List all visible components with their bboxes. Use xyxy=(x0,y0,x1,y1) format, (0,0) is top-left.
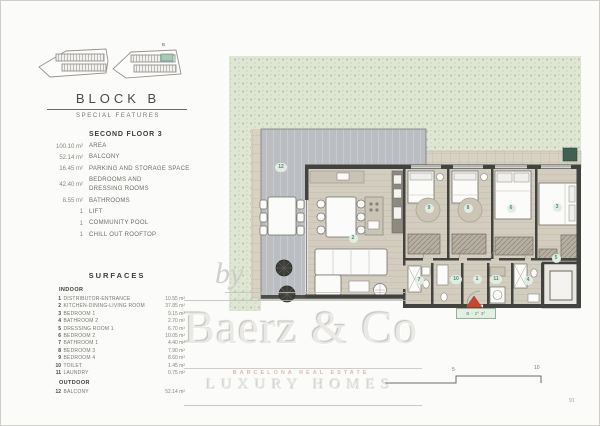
table-row: 11LAUNDRY0.75 m² xyxy=(49,370,185,376)
scale-label-10: 10 xyxy=(534,365,540,371)
title-divider xyxy=(47,109,187,110)
room-label: BEDROOM 1 xyxy=(64,311,169,317)
room-number: 2 xyxy=(49,303,61,309)
room-number: 4 xyxy=(49,318,61,324)
room-marker-11: 11 xyxy=(490,275,502,284)
summary-label: CHILL OUT ROOFTOP xyxy=(89,231,156,240)
summary-label: LIFT xyxy=(89,208,103,217)
room-area: 6.70 m² xyxy=(168,326,185,332)
page-title: BLOCK B xyxy=(43,91,193,106)
summary-value: 42.40 m² xyxy=(41,182,83,188)
summary-value: 100.10 m² xyxy=(41,144,83,150)
room-marker-6: 6 xyxy=(507,204,516,213)
room-label: BALCONY xyxy=(64,389,166,395)
room-marker-1: 1 xyxy=(473,275,482,284)
summary-row: 1CHILL OUT ROOFTOP xyxy=(41,231,213,240)
surfaces-table: SURFACES INDOOR 1DISTRIBUTOR-ENTRANCE10.… xyxy=(49,271,185,396)
summary-label: BATHROOMS xyxy=(89,197,130,206)
room-label: BEDROOM 3 xyxy=(64,348,169,354)
room-label: TOILET xyxy=(64,363,169,369)
room-number: 12 xyxy=(49,389,61,395)
summary-value: 1 xyxy=(41,209,83,215)
room-marker-4: 4 xyxy=(524,276,533,285)
room-area: 10.05 m² xyxy=(165,333,185,339)
page-subtitle: SPECIAL FEATURES xyxy=(43,113,193,119)
room-label: DRESSING ROOM 1 xyxy=(64,326,169,332)
brochure-page: B BLOCK B SPECIAL FEATURES SECOND FLOOR … xyxy=(0,0,600,426)
table-row: 4BATHROOM 22.70 m² xyxy=(49,318,185,324)
room-area: 9.15 m² xyxy=(168,311,185,317)
table-row: 10TOILET1.45 m² xyxy=(49,363,185,369)
room-label: KITCHEN-DINING-LIVING ROOM xyxy=(64,303,166,309)
summary-value: 16.45 m² xyxy=(41,166,83,172)
floor-summary-title: SECOND FLOOR 3 xyxy=(89,131,162,138)
floor-summary-list: 100.10 m²AREA 52.14 m²BALCONY 16.45 m²PA… xyxy=(41,142,213,242)
scale-label-5: 5 xyxy=(452,367,455,373)
table-row: 6BEDROOM 210.05 m² xyxy=(49,333,185,339)
room-label: BATHROOM 1 xyxy=(64,340,169,346)
table-row: 1DISTRIBUTOR-ENTRANCE10.55 m² xyxy=(49,296,185,302)
room-area: 1.45 m² xyxy=(168,363,185,369)
summary-row: 100.10 m²AREA xyxy=(41,142,213,151)
summary-value: 1 xyxy=(41,232,83,238)
room-area: 8.60 m² xyxy=(168,355,185,361)
room-marker-9: 9 xyxy=(425,204,434,213)
summary-value: 52.14 m² xyxy=(41,155,83,161)
summary-value: 1 xyxy=(41,221,83,227)
room-area: 10.55 m² xyxy=(165,296,185,302)
table-row: 5DRESSING ROOM 16.70 m² xyxy=(49,326,185,332)
room-label: BEDROOM 2 xyxy=(64,333,166,339)
room-number: 11 xyxy=(49,370,61,376)
table-row: 2KITCHEN-DINING-LIVING ROOM37.85 m² xyxy=(49,303,185,309)
summary-row: 16.45 m²PARKING AND STORAGE SPACE xyxy=(41,165,213,174)
table-row: 7BATHROOM 14.40 m² xyxy=(49,340,185,346)
table-row: 8BEDROOM 37.90 m² xyxy=(49,348,185,354)
room-number: 1 xyxy=(49,296,61,302)
room-area: 52.14 m² xyxy=(165,389,185,395)
room-label: BATHROOM 2 xyxy=(64,318,169,324)
summary-row: 42.40 m²BEDROOMS AND DRESSING ROOMS xyxy=(41,176,213,194)
room-area: 2.70 m² xyxy=(168,318,185,324)
room-area: 37.85 m² xyxy=(165,303,185,309)
room-area: 4.40 m² xyxy=(168,340,185,346)
outdoor-section-label: OUTDOOR xyxy=(59,380,185,386)
room-marker-7: 7 xyxy=(415,276,424,285)
summary-label: BEDROOMS AND DRESSING ROOMS xyxy=(89,176,149,194)
summary-label: PARKING AND STORAGE SPACE xyxy=(89,165,190,174)
summary-label: COMMUNITY POOL xyxy=(89,219,148,228)
room-label: LAUNDRY xyxy=(64,370,169,376)
site-plan-block-label: B xyxy=(162,42,165,47)
table-row: 9BEDROOM 48.60 m² xyxy=(49,355,185,361)
room-number: 8 xyxy=(49,348,61,354)
summary-label: BALCONY xyxy=(89,153,120,162)
room-marker-10: 10 xyxy=(450,275,462,284)
summary-value: 8.55 m² xyxy=(41,198,83,204)
surfaces-title: SURFACES xyxy=(49,271,185,280)
room-area: 7.90 m² xyxy=(168,348,185,354)
room-marker-5: 5 xyxy=(552,254,561,263)
page-number: 91 xyxy=(569,398,575,404)
indoor-section-label: INDOOR xyxy=(59,287,185,293)
room-number: 7 xyxy=(49,340,61,346)
room-label: DISTRIBUTOR-ENTRANCE xyxy=(64,296,166,302)
room-number: 5 xyxy=(49,326,61,332)
summary-row: 52.14 m²BALCONY xyxy=(41,153,213,162)
summary-label: AREA xyxy=(89,142,107,151)
summary-row: 1LIFT xyxy=(41,208,213,217)
room-marker-8: 8 xyxy=(464,204,473,213)
unit-tag: B - 2º 3º xyxy=(456,308,496,319)
table-row: 3BEDROOM 19.15 m² xyxy=(49,311,185,317)
room-number: 9 xyxy=(49,355,61,361)
summary-row: 1COMMUNITY POOL xyxy=(41,219,213,228)
room-number: 3 xyxy=(49,311,61,317)
room-label: BEDROOM 4 xyxy=(64,355,169,361)
table-row: 12BALCONY52.14 m² xyxy=(49,389,185,395)
room-marker-3: 3 xyxy=(553,203,562,212)
room-number: 6 xyxy=(49,333,61,339)
room-number: 10 xyxy=(49,363,61,369)
summary-row: 8.55 m²BATHROOMS xyxy=(41,197,213,206)
room-marker-12: 12 xyxy=(275,163,287,172)
room-area: 0.75 m² xyxy=(168,370,185,376)
room-marker-2: 2 xyxy=(349,234,358,243)
